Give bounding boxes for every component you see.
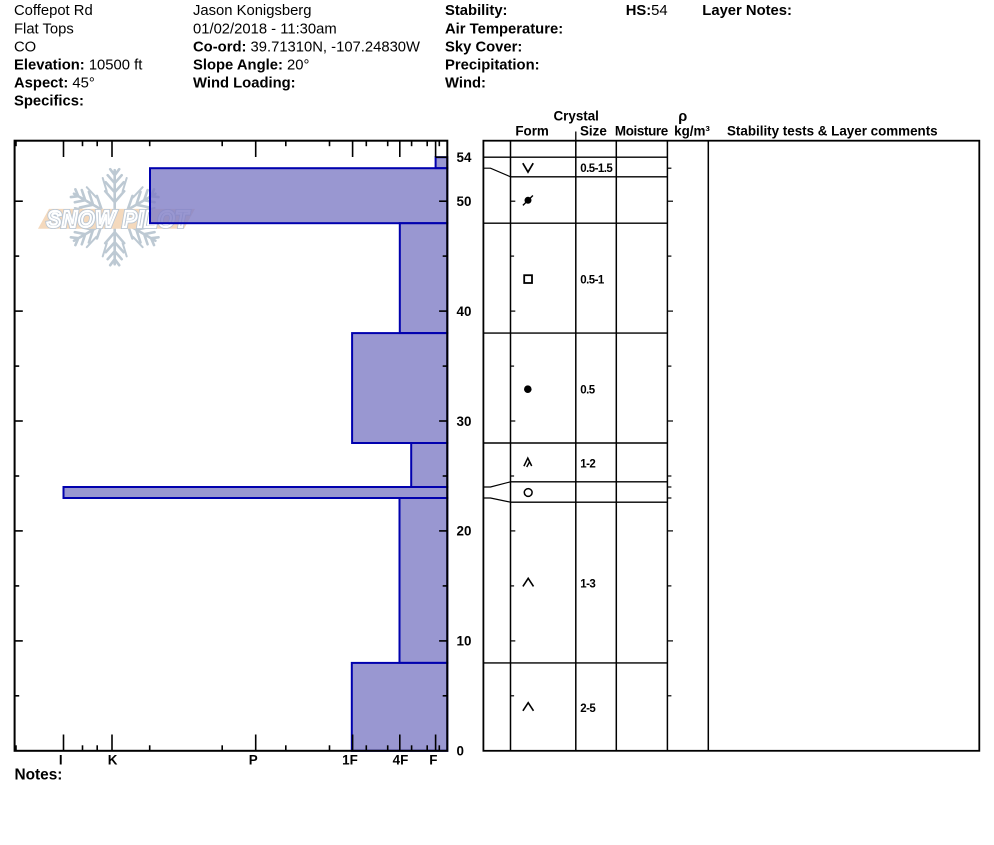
svg-text:40: 40 bbox=[457, 304, 472, 319]
svg-text:Flat Tops: Flat Tops bbox=[14, 21, 74, 37]
svg-text:4F: 4F bbox=[393, 753, 409, 768]
svg-text:10: 10 bbox=[457, 634, 472, 649]
svg-text:30: 30 bbox=[457, 414, 472, 429]
svg-text:K: K bbox=[108, 753, 118, 768]
svg-text:0.5-1.5: 0.5-1.5 bbox=[580, 163, 613, 175]
svg-text:P: P bbox=[249, 753, 258, 768]
svg-text:Crystal: Crystal bbox=[553, 109, 598, 124]
svg-text:Jason Konigsberg: Jason Konigsberg bbox=[193, 3, 311, 19]
svg-text:1F: 1F bbox=[342, 753, 358, 768]
svg-text:20: 20 bbox=[457, 524, 472, 539]
svg-text:0: 0 bbox=[457, 744, 464, 759]
svg-text:Wind Loading:: Wind Loading: bbox=[193, 76, 296, 92]
svg-text:kg/m³: kg/m³ bbox=[674, 124, 710, 139]
svg-text:2-5: 2-5 bbox=[580, 703, 596, 715]
svg-text:Form: Form bbox=[515, 124, 549, 139]
svg-text:50: 50 bbox=[457, 194, 472, 209]
svg-text:0.5: 0.5 bbox=[580, 384, 595, 396]
svg-text:Specifics:: Specifics: bbox=[14, 94, 84, 110]
svg-text:Slope Angle: 20°: Slope Angle: 20° bbox=[193, 58, 309, 74]
svg-text:Stability tests & Layer commen: Stability tests & Layer comments bbox=[727, 124, 938, 139]
svg-text:Elevation: 10500 ft: Elevation: 10500 ft bbox=[14, 58, 142, 74]
svg-text:Wind:: Wind: bbox=[445, 76, 486, 92]
svg-text:Notes:: Notes: bbox=[15, 767, 63, 784]
svg-text:01/02/2018 - 11:30am: 01/02/2018 - 11:30am bbox=[193, 21, 337, 37]
svg-text:Stability:: Stability: bbox=[445, 3, 507, 19]
svg-text:Precipitation:: Precipitation: bbox=[445, 58, 540, 74]
svg-text:Aspect: 45°: Aspect: 45° bbox=[14, 76, 95, 92]
svg-text:1-3: 1-3 bbox=[580, 579, 595, 591]
svg-text:Co-ord: 39.71310N, -107.24830W: Co-ord: 39.71310N, -107.24830W bbox=[193, 39, 420, 55]
svg-text:I: I bbox=[59, 753, 63, 768]
svg-text:0.5-1: 0.5-1 bbox=[580, 274, 605, 286]
svg-text:F: F bbox=[429, 753, 437, 768]
svg-text:1-2: 1-2 bbox=[580, 458, 595, 470]
svg-text:Sky Cover:: Sky Cover: bbox=[445, 39, 522, 55]
svg-text:54: 54 bbox=[457, 150, 472, 165]
svg-text:CO: CO bbox=[14, 39, 36, 55]
svg-text:HS:54: HS:54 bbox=[626, 3, 668, 19]
svg-text:Layer Notes:: Layer Notes: bbox=[702, 3, 792, 19]
svg-text:Moisture: Moisture bbox=[615, 124, 668, 139]
svg-text:Size: Size bbox=[580, 124, 607, 139]
svg-text:Air Temperature:: Air Temperature: bbox=[445, 21, 563, 37]
svg-text:Coffepot Rd: Coffepot Rd bbox=[14, 3, 93, 19]
